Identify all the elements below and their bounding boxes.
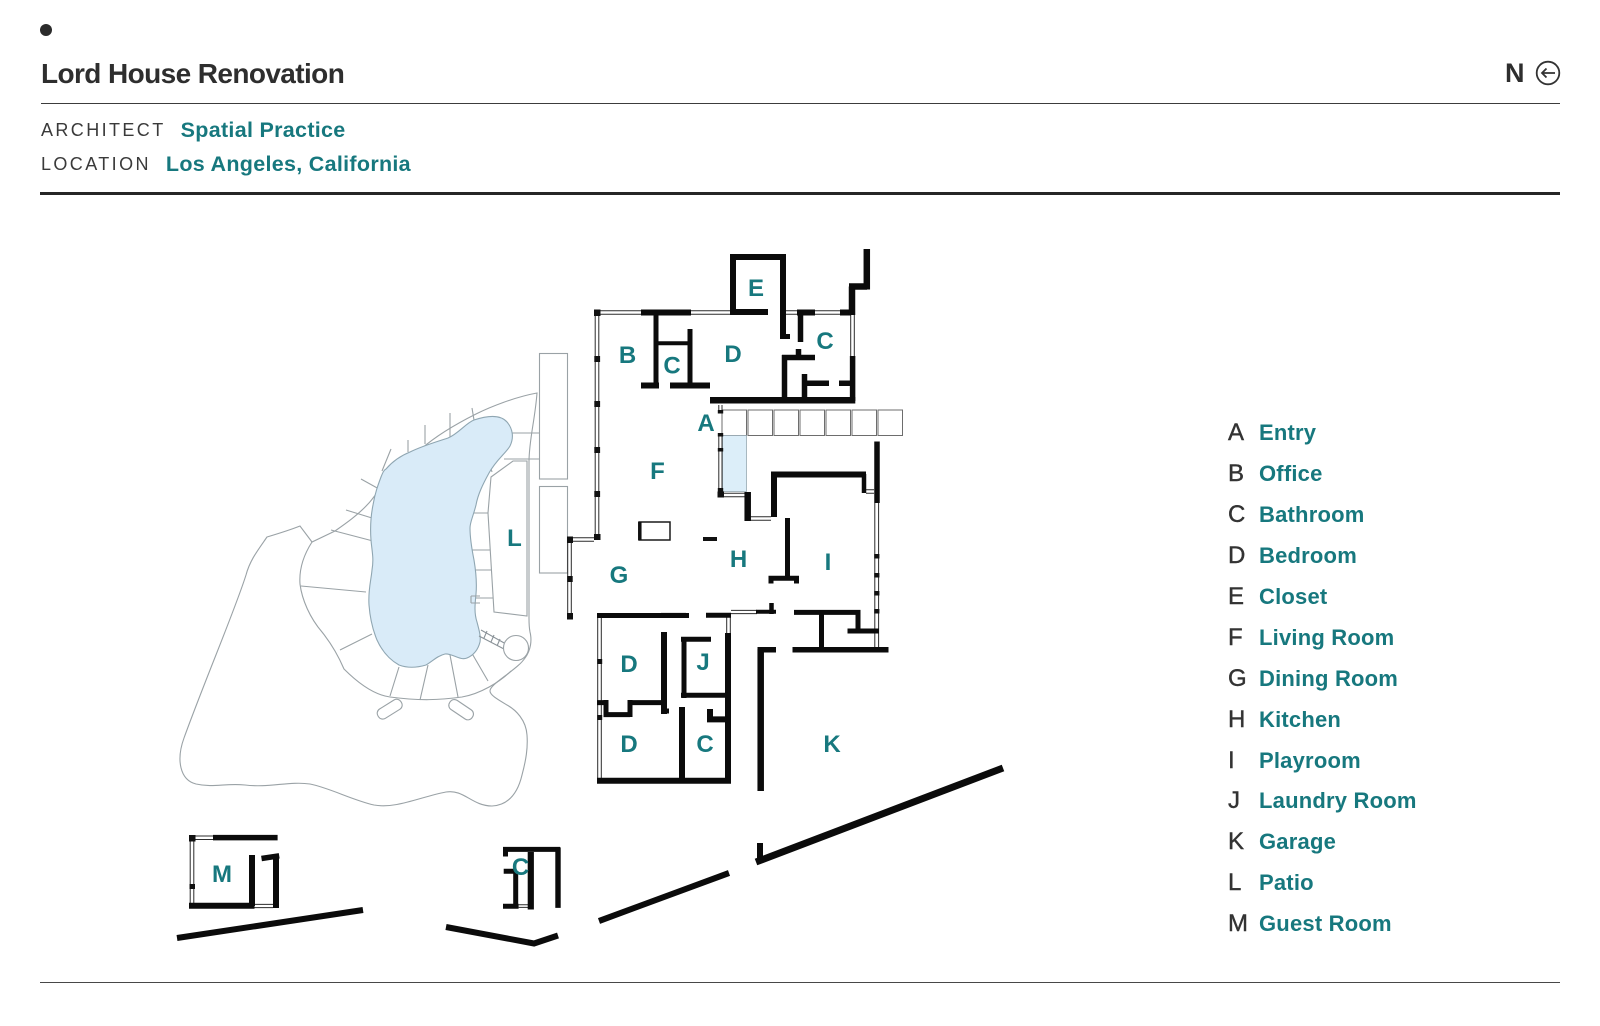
- svg-text:C: C: [663, 353, 680, 380]
- svg-text:J: J: [696, 649, 709, 676]
- svg-text:K: K: [823, 731, 841, 758]
- svg-text:F: F: [650, 458, 665, 485]
- svg-text:M: M: [212, 861, 232, 888]
- svg-text:I: I: [825, 549, 832, 576]
- svg-text:H: H: [730, 546, 747, 573]
- svg-text:B: B: [619, 342, 636, 369]
- svg-text:D: D: [620, 731, 637, 758]
- svg-text:D: D: [620, 651, 637, 678]
- svg-text:D: D: [724, 341, 741, 368]
- svg-text:L: L: [507, 525, 522, 552]
- svg-text:C: C: [512, 854, 529, 881]
- svg-text:C: C: [816, 328, 833, 355]
- svg-text:G: G: [610, 562, 629, 589]
- svg-text:C: C: [696, 731, 713, 758]
- svg-text:E: E: [748, 275, 764, 302]
- svg-text:A: A: [697, 410, 714, 437]
